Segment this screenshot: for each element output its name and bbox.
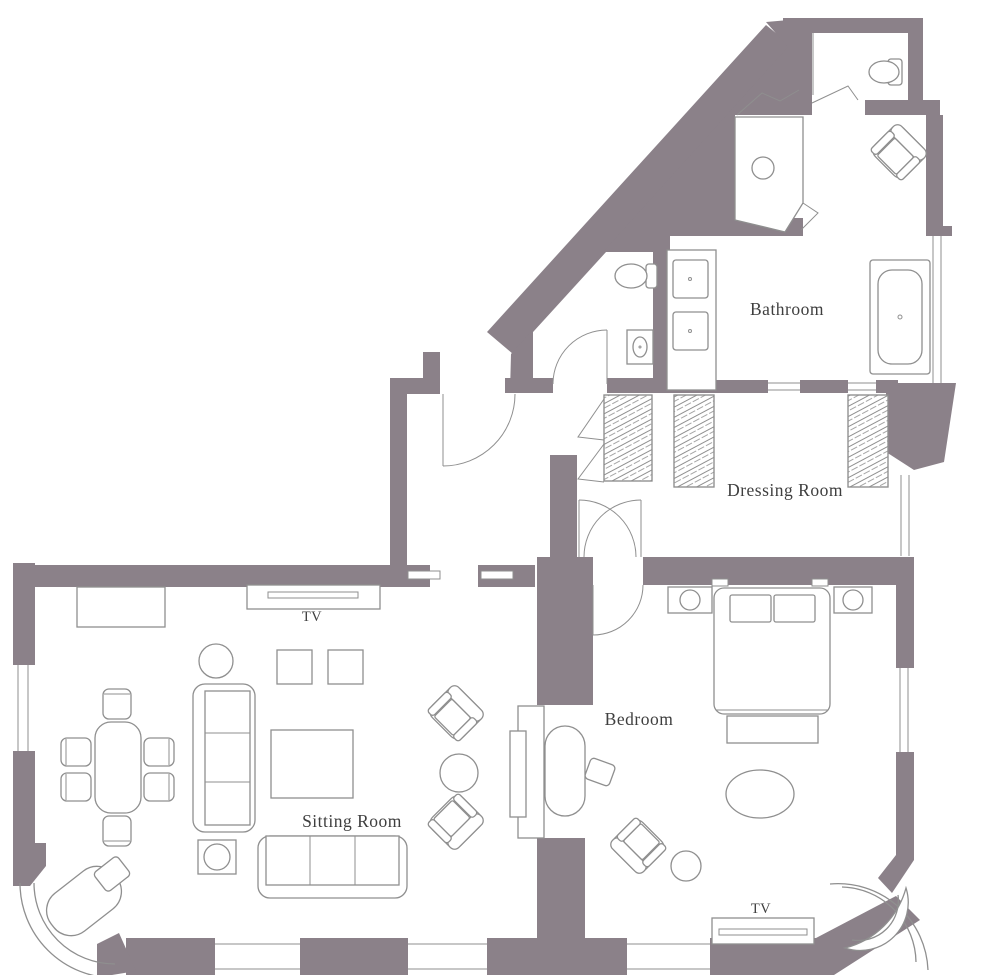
- sofa-vertical: [193, 684, 255, 832]
- dressing-right-window: [901, 475, 909, 556]
- corridor-wall: [550, 455, 577, 563]
- sitting-bottom-wall-2: [300, 938, 408, 975]
- sitting-tv-label: TV: [302, 609, 322, 625]
- bedroom-wall-niche-left: [712, 579, 728, 586]
- wc-toilet: [615, 264, 657, 288]
- coffee-table: [271, 730, 353, 798]
- bedroom-bottom-window: [627, 944, 710, 969]
- bedroom-right-wall-upper: [896, 557, 914, 668]
- sitting-room-furniture: [38, 585, 486, 945]
- bedroom-door: [593, 585, 643, 635]
- dressing-right-wall-chunk: [886, 383, 956, 470]
- bathroom-right-window: [933, 236, 941, 383]
- wardrobe-2: [674, 395, 714, 487]
- sitting-left-wall-lower: [13, 751, 35, 848]
- dining-table: [95, 722, 141, 813]
- hall-left-wall: [390, 378, 407, 565]
- sideboard: [77, 587, 165, 627]
- bedroom-armchair: [608, 816, 667, 875]
- bedroom-corner-wall: [878, 855, 914, 893]
- sitting-top-wall: [13, 565, 430, 587]
- vanity-double-sink: [667, 250, 716, 390]
- console-inner: [510, 731, 526, 817]
- wc-sink: [627, 330, 653, 364]
- dressing-room-label: Dressing Room: [727, 480, 843, 500]
- toilet-room-right-wall: [908, 18, 923, 112]
- sitting-armchair-2: [426, 792, 485, 851]
- bedroom-ottoman: [671, 851, 701, 881]
- dressing-door-left: [579, 500, 636, 557]
- top-wall: [783, 18, 915, 33]
- bathroom-label: Bathroom: [750, 299, 824, 319]
- sitting-bottom-window-1: [215, 944, 300, 969]
- nightstand-left: [668, 587, 712, 613]
- wardrobes: [578, 395, 888, 487]
- round-table: [440, 754, 478, 792]
- nightstand-right: [834, 587, 872, 613]
- hall-upper-stub: [423, 352, 440, 382]
- square-side-table: [198, 840, 236, 874]
- sitting-bottom-wall-3: [487, 938, 553, 975]
- bathroom-cased-opening-2: [848, 383, 876, 390]
- wc-bottom-wall-left: [505, 378, 553, 393]
- dressing-door-right: [584, 500, 641, 557]
- bathroom-right-wall: [926, 115, 943, 236]
- sitting-armchair-1: [426, 683, 485, 742]
- pouf-2: [328, 650, 363, 684]
- bedroom-desk: [510, 706, 616, 838]
- bedroom-rug: [726, 770, 794, 818]
- sitting-pocket-door-left: [408, 571, 440, 579]
- sitting-room-label: Sitting Room: [302, 811, 402, 831]
- bathroom-right-step: [926, 226, 952, 236]
- sitting-tv-console: [247, 585, 380, 609]
- toilet-room-bottom-wall: [865, 100, 940, 115]
- wardrobe-1: [578, 395, 652, 482]
- bath-dressing-wall-2: [800, 380, 848, 393]
- wc-fixtures: [615, 264, 657, 364]
- entry-door: [443, 394, 515, 466]
- desk-top: [545, 726, 585, 816]
- bedroom-right-window: [900, 668, 908, 752]
- sofa-horizontal: [258, 836, 407, 898]
- bifold-doors: [578, 399, 604, 482]
- wardrobe-3: [848, 395, 888, 487]
- divider-wall-upper: [537, 557, 593, 705]
- sitting-bottom-wall-1: [126, 938, 215, 975]
- turret-desk: [38, 855, 132, 944]
- divider-wall-lower: [537, 838, 585, 942]
- bedroom-tv-console: [712, 918, 814, 944]
- bed: [714, 588, 830, 743]
- bedroom-tv-label: TV: [751, 901, 771, 917]
- bedroom-right-wall-lower: [896, 752, 914, 855]
- bedroom-top-wall: [643, 557, 898, 585]
- toilet-room-door: [812, 33, 858, 103]
- bathtub: [870, 260, 930, 374]
- turret-left-corner-upper: [13, 843, 46, 886]
- dining-set: [61, 689, 174, 846]
- pouf-1: [277, 650, 312, 684]
- bath-dressing-wall-3: [876, 380, 898, 393]
- sitting-bottom-window-2: [408, 944, 487, 969]
- bathroom-armchair: [869, 122, 928, 181]
- sitting-pocket-door-right: [481, 571, 513, 579]
- wc-door: [553, 330, 607, 384]
- desk-chair: [584, 757, 616, 787]
- wc-bottom-wall-right: [607, 378, 657, 393]
- floor-plan-drawing: Bathroom Dressing Room Bedroom Sitting R…: [0, 0, 1000, 975]
- bedroom-label: Bedroom: [605, 709, 674, 729]
- bedroom-wall-niche-right: [812, 579, 828, 586]
- sitting-left-window: [18, 665, 28, 751]
- bathroom-cased-opening-1: [768, 383, 800, 390]
- round-side-table: [199, 644, 233, 678]
- bed-bench: [727, 716, 818, 743]
- toilet-room-toilet: [869, 59, 902, 85]
- floor-plan: Bathroom Dressing Room Bedroom Sitting R…: [0, 0, 1000, 975]
